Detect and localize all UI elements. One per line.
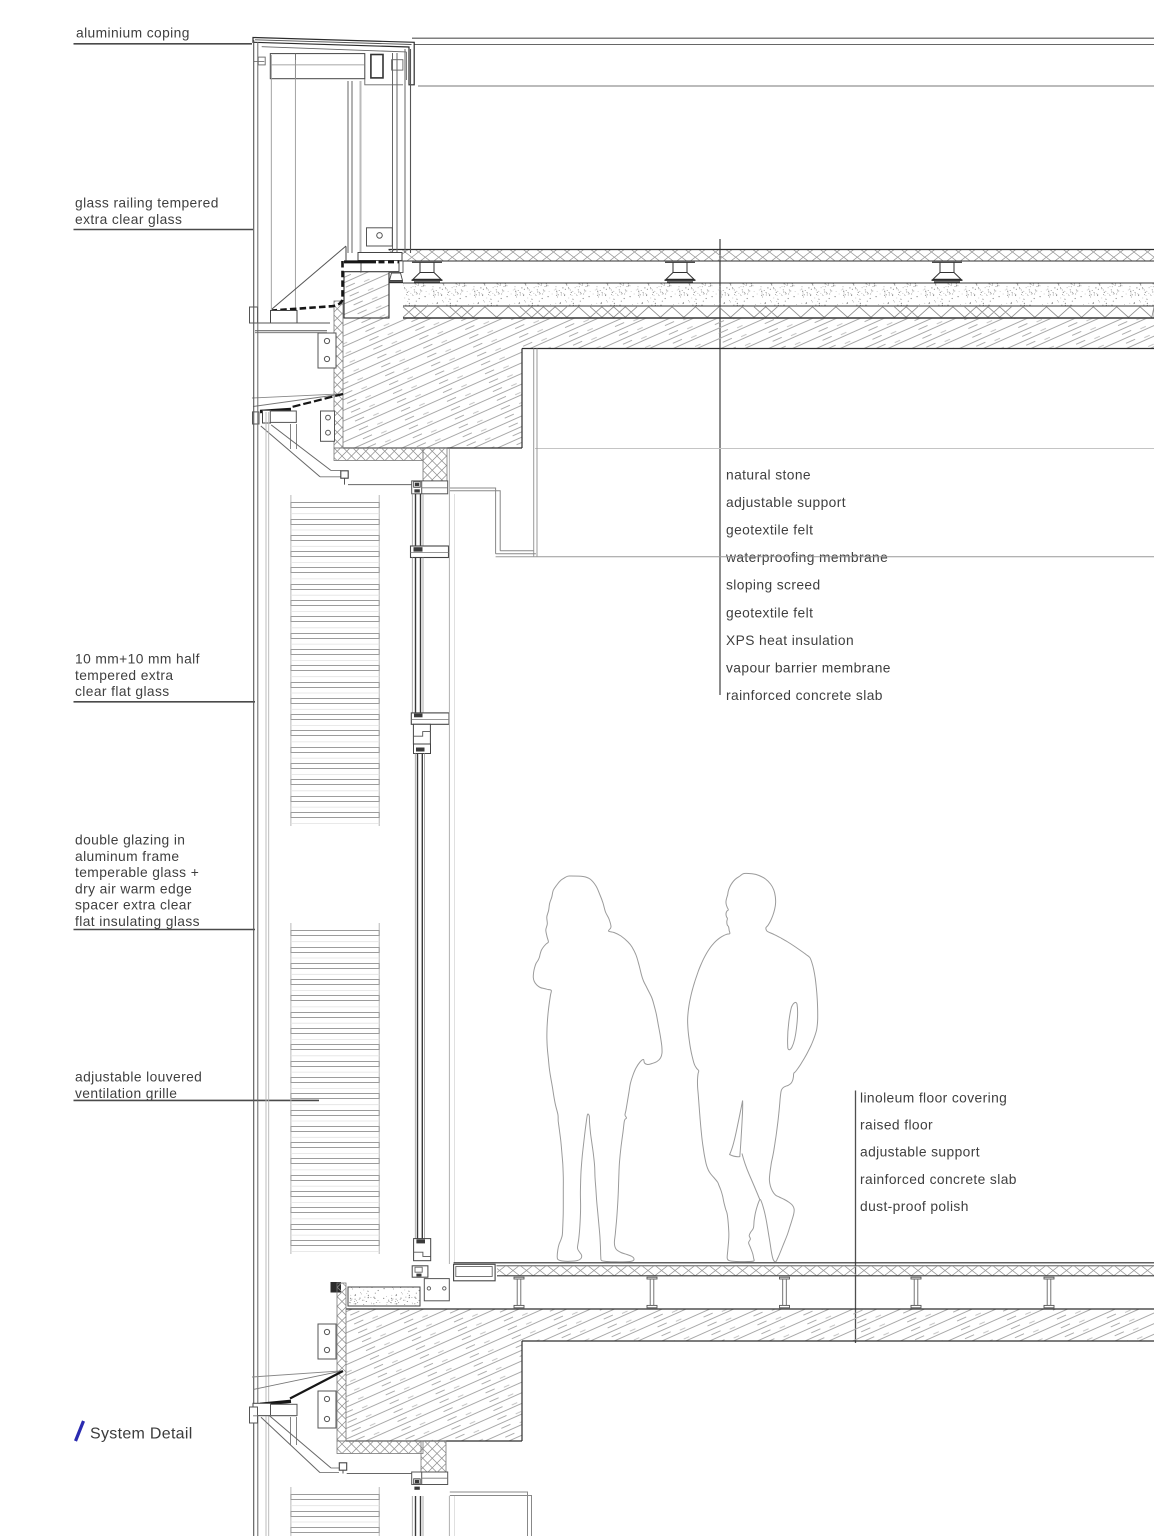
svg-text:adjustable support: adjustable support [726, 495, 846, 510]
svg-text:flat insulating glass: flat insulating glass [75, 914, 200, 929]
svg-text:glass railing tempered: glass railing tempered [75, 196, 219, 211]
svg-text:ventilation grille: ventilation grille [75, 1086, 177, 1101]
svg-text:geotextile felt: geotextile felt [726, 523, 813, 538]
svg-text:tempered extra: tempered extra [75, 668, 173, 683]
svg-text:dry air warm edge: dry air warm edge [75, 881, 192, 896]
svg-text:temperable glass +: temperable glass + [75, 865, 199, 880]
svg-text:10 mm+10 mm half: 10 mm+10 mm half [75, 652, 200, 667]
svg-text:waterproofing membrane: waterproofing membrane [725, 550, 888, 565]
svg-text:dust-proof polish: dust-proof polish [860, 1199, 969, 1214]
svg-text:adjustable louvered: adjustable louvered [75, 1070, 202, 1085]
svg-text:adjustable support: adjustable support [860, 1145, 980, 1160]
svg-text:vapour barrier membrane: vapour barrier membrane [726, 660, 891, 675]
svg-text:spacer extra clear: spacer extra clear [75, 898, 192, 913]
svg-text:linoleum floor covering: linoleum floor covering [860, 1090, 1007, 1105]
svg-text:raised floor: raised floor [860, 1118, 933, 1133]
svg-text:aluminum frame: aluminum frame [75, 849, 180, 864]
svg-text:geotextile felt: geotextile felt [726, 605, 813, 620]
svg-text:extra clear glass: extra clear glass [75, 212, 182, 227]
svg-text:rainforced concrete slab: rainforced concrete slab [860, 1172, 1017, 1187]
svg-text:double glazing in: double glazing in [75, 833, 185, 848]
svg-text:rainforced concrete slab: rainforced concrete slab [726, 688, 883, 703]
svg-text:sloping screed: sloping screed [726, 578, 821, 593]
svg-text:clear flat glass: clear flat glass [75, 684, 170, 699]
svg-text:XPS heat insulation: XPS heat insulation [726, 633, 854, 648]
svg-text:natural stone: natural stone [726, 468, 811, 483]
svg-text:aluminium coping: aluminium coping [76, 26, 190, 41]
svg-text:System Detail: System Detail [90, 1426, 193, 1443]
